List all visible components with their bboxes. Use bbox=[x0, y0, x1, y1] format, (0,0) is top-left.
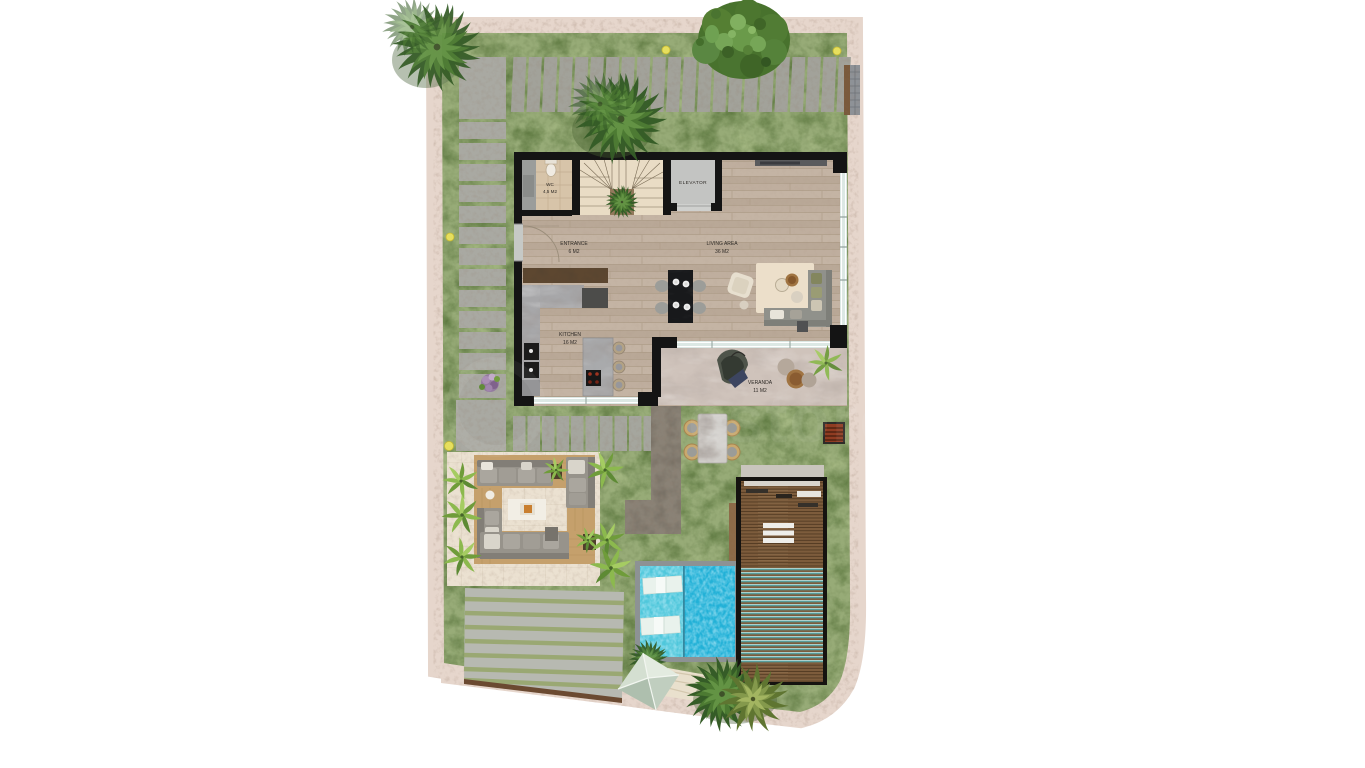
svg-text:KITCHEN: KITCHEN bbox=[559, 332, 581, 338]
svg-text:WC: WC bbox=[546, 182, 554, 187]
svg-text:LIVING AREA: LIVING AREA bbox=[706, 241, 738, 247]
svg-text:estore: estore bbox=[688, 382, 898, 456]
svg-text:ELEVATOR: ELEVATOR bbox=[679, 180, 707, 186]
svg-text:16 M2: 16 M2 bbox=[563, 340, 577, 346]
svg-text:4,5 M2: 4,5 M2 bbox=[543, 189, 557, 194]
svg-text:ENTRANCE: ENTRANCE bbox=[560, 241, 588, 247]
svg-text:36 M2: 36 M2 bbox=[715, 249, 729, 255]
svg-text:6 M2: 6 M2 bbox=[568, 249, 579, 255]
